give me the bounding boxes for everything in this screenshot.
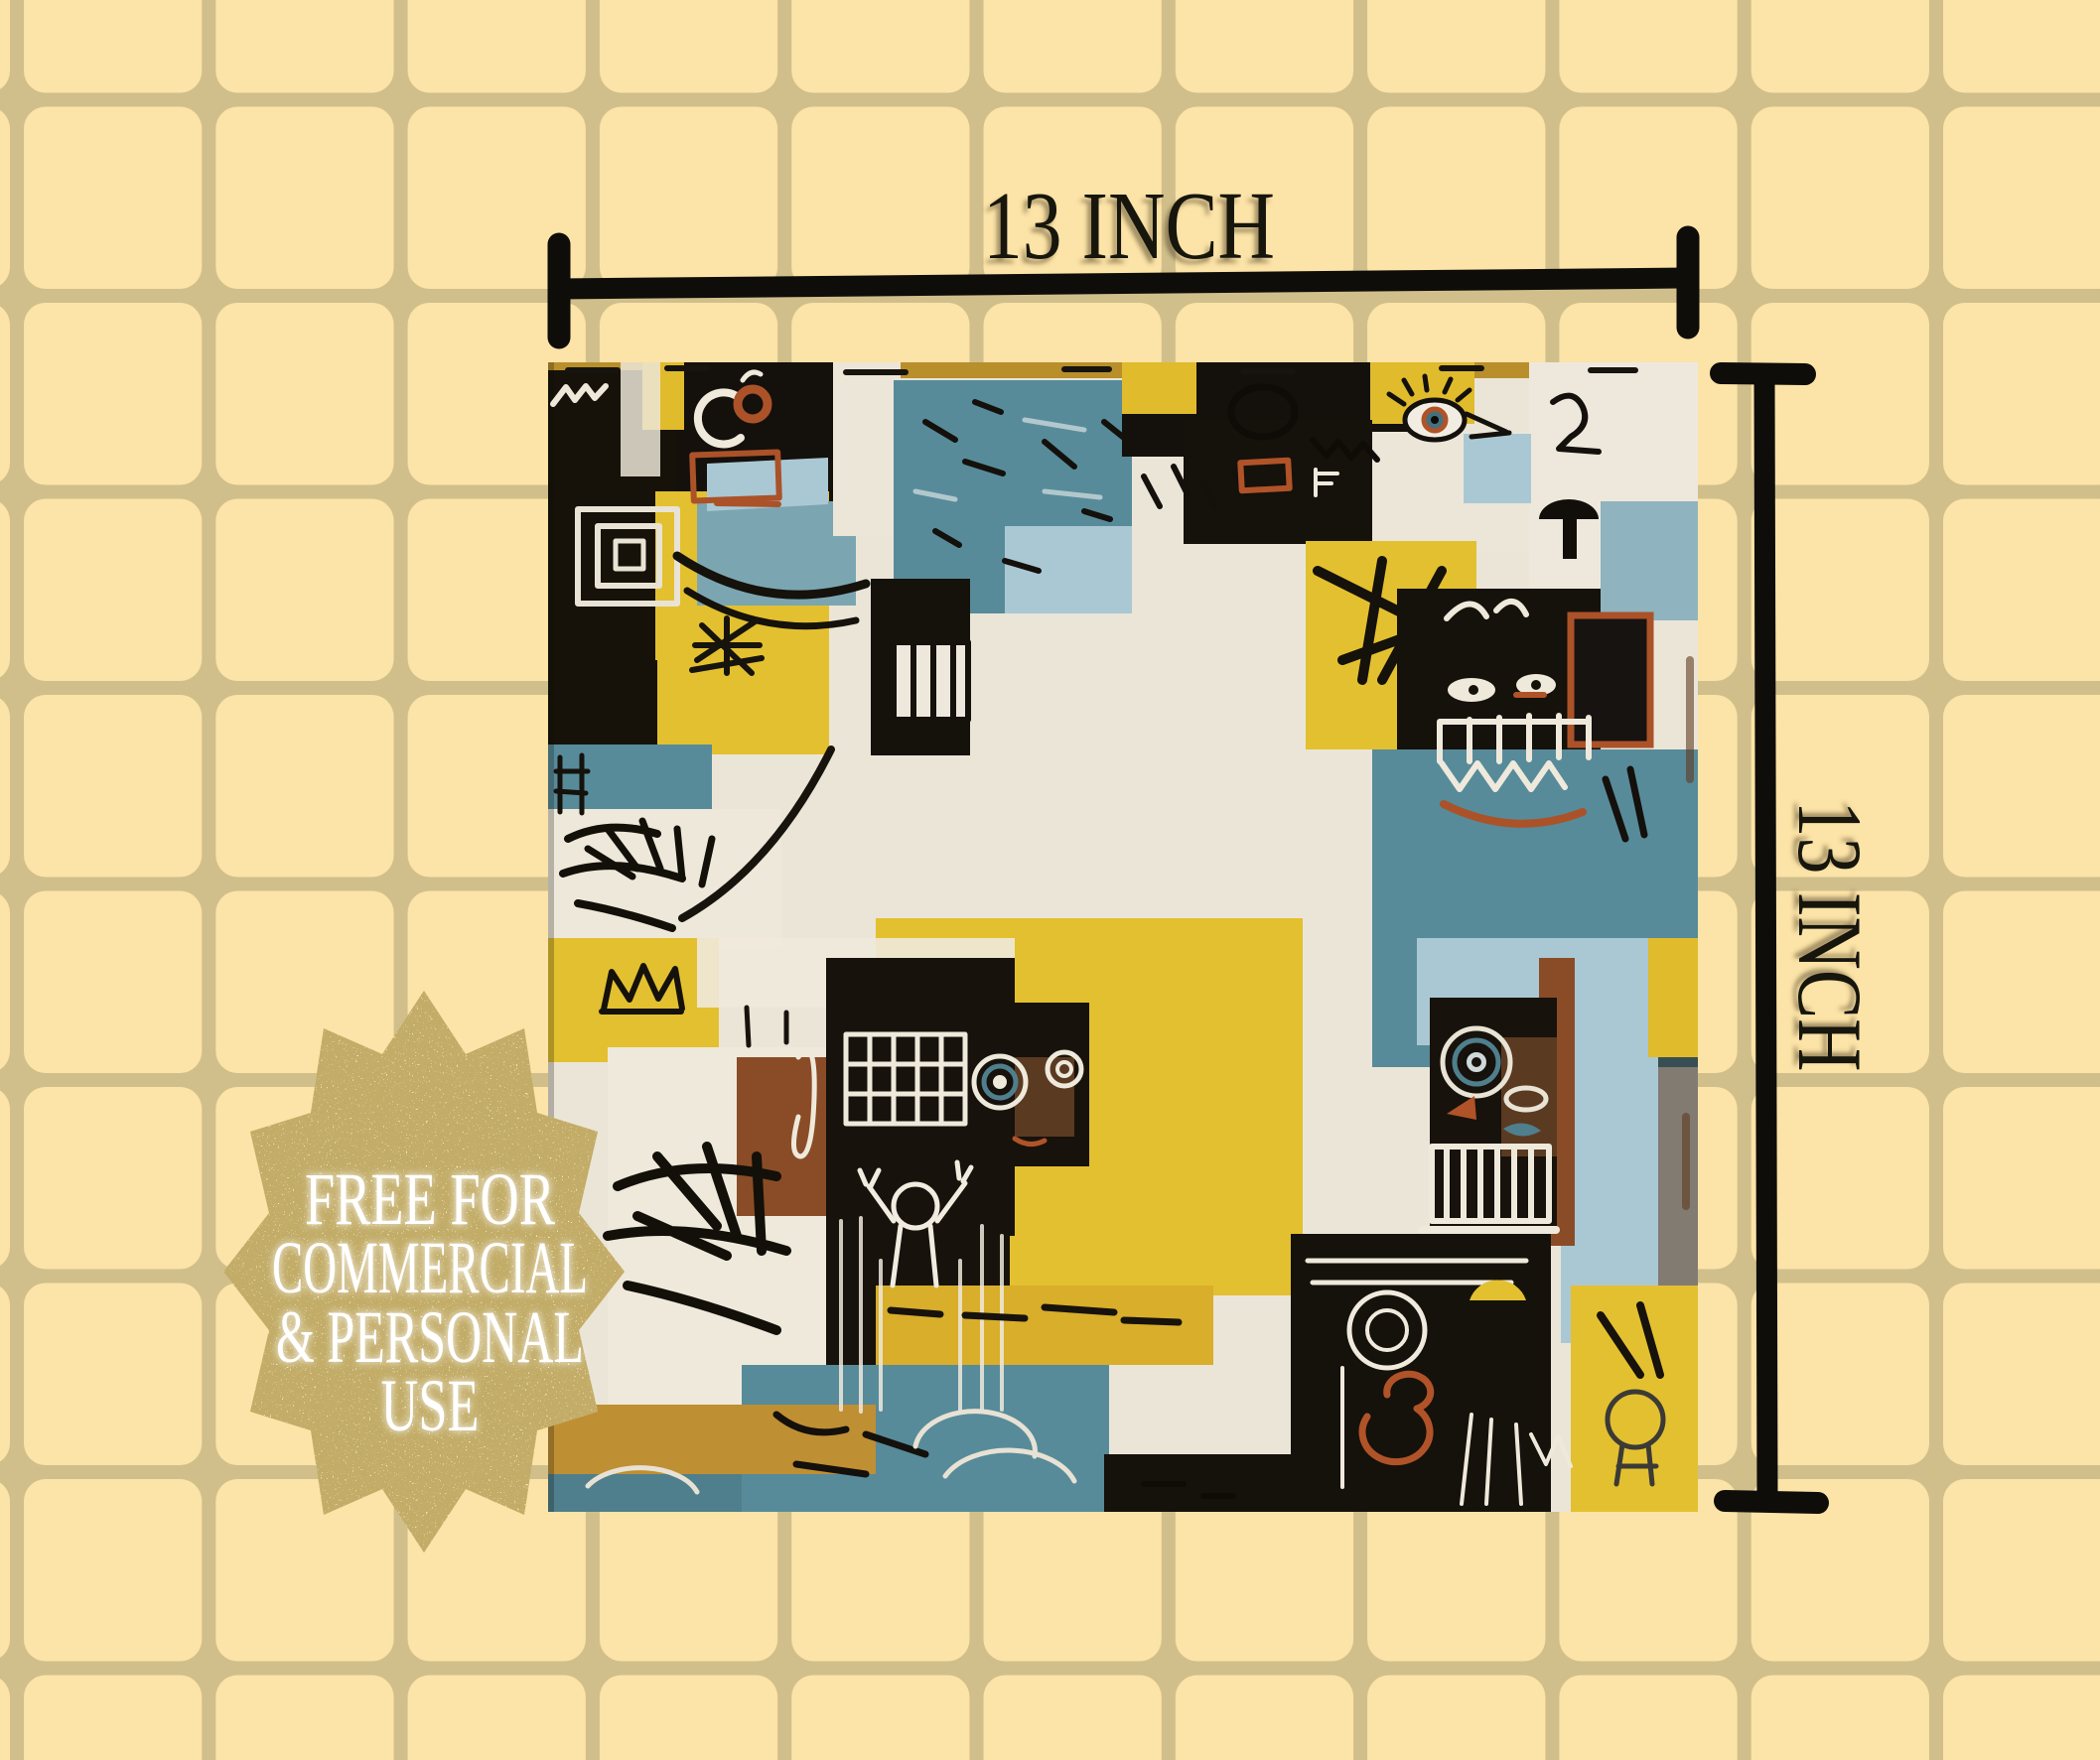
annotation-layer: 13 INCH 13 INCH FREE FOR COMMERCIAL & PE… xyxy=(0,0,2100,1760)
height-label: 13 INCH xyxy=(1779,801,1881,1072)
height-dimension-line xyxy=(1764,373,1767,1501)
height-dimension-bottom-cap xyxy=(1725,1501,1818,1503)
height-dimension-top-cap xyxy=(1721,373,1805,374)
badge-line-4: USE xyxy=(381,1365,480,1447)
width-label: 13 INCH xyxy=(983,173,1275,279)
license-badge: FREE FOR COMMERCIAL & PERSONAL USE xyxy=(223,991,625,1553)
width-dimension-line xyxy=(559,278,1688,289)
mockup-stage: 13 INCH 13 INCH FREE FOR COMMERCIAL & PE… xyxy=(0,0,2100,1760)
